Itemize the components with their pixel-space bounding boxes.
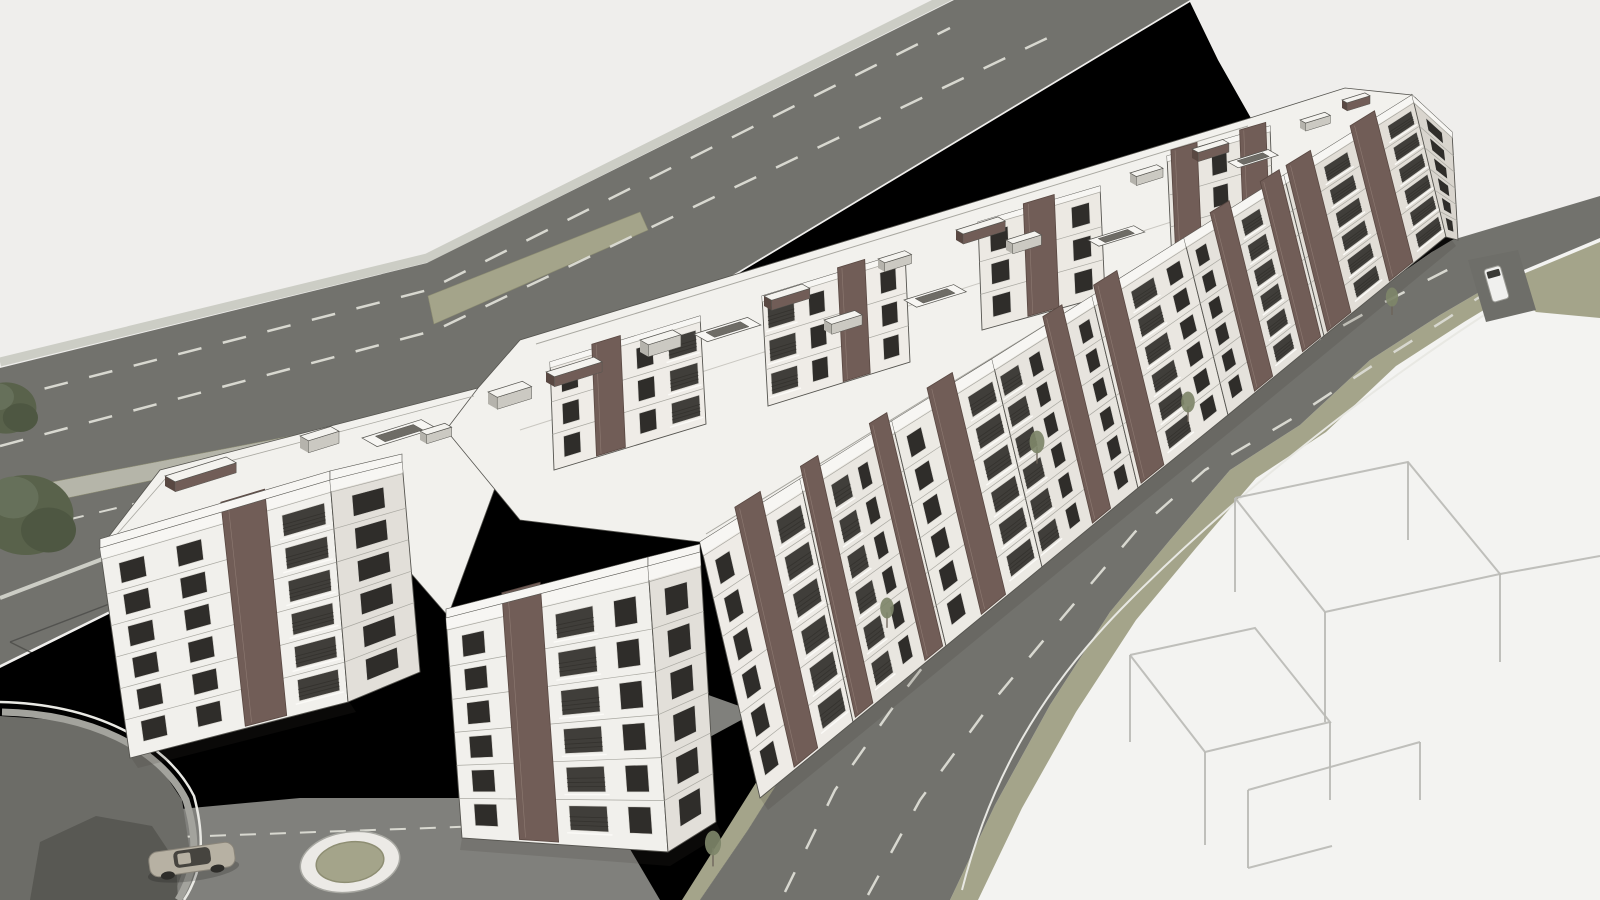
- tower-b-front-facade-window: [614, 596, 638, 627]
- tower-b-front-facade-window: [467, 700, 491, 724]
- rear-block-facade-2-window: [808, 290, 825, 316]
- tower-b-front-facade-window: [566, 766, 606, 792]
- tower-b-front-facade-window: [569, 806, 609, 832]
- tower-b-front-facade-window: [561, 686, 601, 715]
- tower-b-front-facade-window: [616, 638, 640, 668]
- tower-b-front-facade-window: [625, 765, 649, 792]
- tower-b-front-facade-window: [462, 630, 486, 657]
- rear-block-facade-2-window: [812, 356, 829, 382]
- rear-block-facade-2-window: [881, 301, 898, 327]
- site-render-canvas[interactable]: [0, 0, 1600, 900]
- tower-b-front-facade-window: [628, 807, 653, 834]
- architectural-render: [0, 0, 1600, 900]
- tower-b-front-facade-window: [469, 735, 493, 758]
- tower-b-front-facade-window: [464, 665, 488, 691]
- tower-b-front-facade-window: [622, 723, 646, 751]
- rear-block-facade-2-window: [883, 334, 900, 360]
- scene-layers: [0, 0, 1600, 900]
- rear-block-facade-2-window: [880, 268, 897, 294]
- tower-b-front-facade-window: [471, 770, 495, 792]
- tower-b-front-facade-window: [474, 804, 498, 827]
- tower-b-front-facade-window: [619, 681, 643, 710]
